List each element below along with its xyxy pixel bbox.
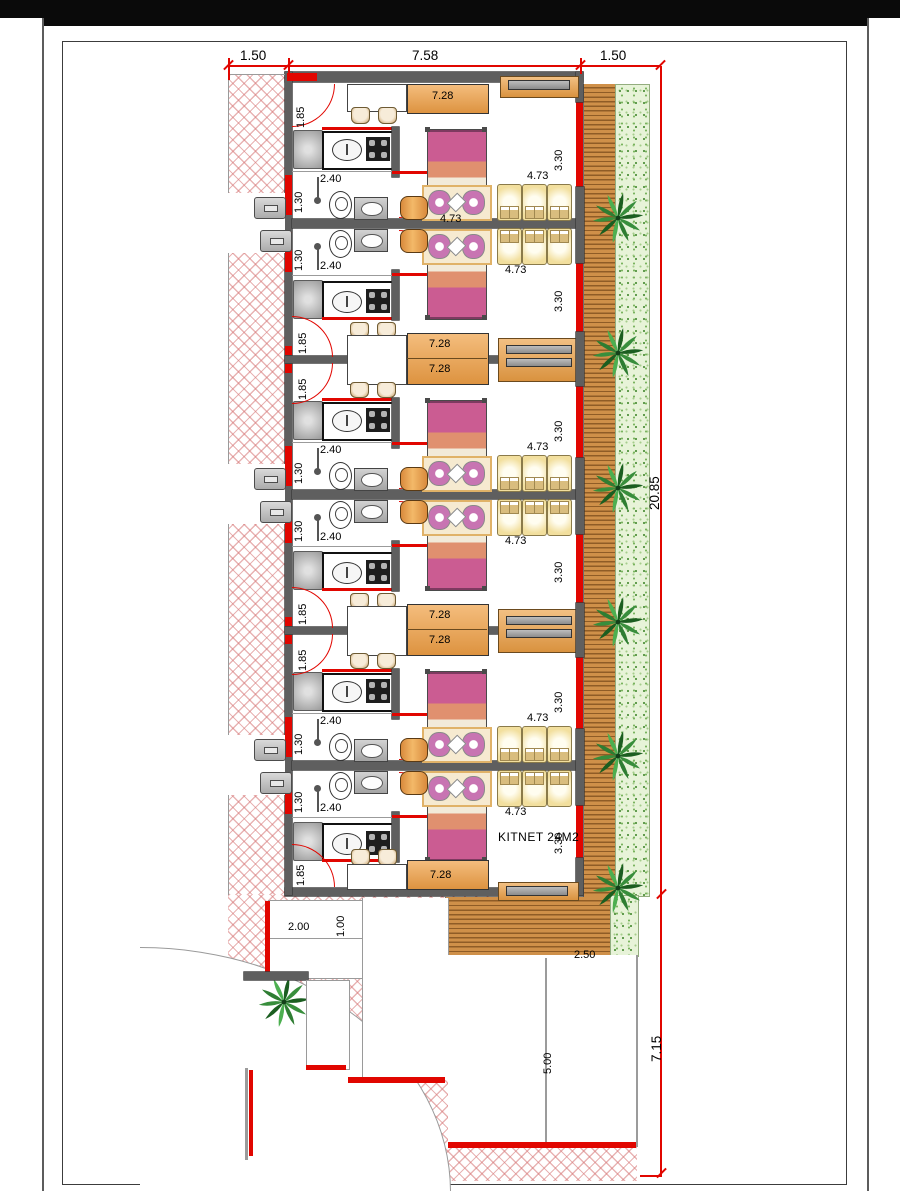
bed-post (482, 398, 487, 403)
dim-label-kitchen: 2.40 (320, 445, 341, 456)
toilet-icon (329, 772, 352, 800)
right-wall-stub (576, 458, 584, 534)
dining-module (497, 455, 522, 492)
right-wall-stub (576, 187, 584, 263)
shower-rod (317, 719, 319, 741)
stove-icon (366, 560, 390, 584)
kitchen-red-line (322, 127, 392, 130)
dim-label-shower: 1.30 (294, 177, 305, 213)
dim-label-living: 4.73 (527, 171, 548, 182)
chair-icon (509, 206, 519, 219)
dim-label-right-total: 20.85 (648, 450, 662, 510)
ac-unit (254, 739, 286, 761)
sink-icon (332, 681, 362, 703)
strip-line (292, 442, 399, 443)
bath-partition-wall (392, 398, 399, 448)
dim-label-living-extra: 4.73 (440, 214, 461, 225)
ac-unit (254, 197, 286, 219)
ac-unit (254, 468, 286, 490)
vanity-sink (354, 468, 388, 491)
dim-label-window: 3.30 (554, 547, 565, 583)
window-glass (506, 345, 572, 354)
toilet-icon (329, 230, 352, 258)
bed (427, 671, 487, 729)
dim-line-right (660, 66, 662, 1176)
hall-cylinder-cabinet (400, 196, 428, 220)
walkway-edge-line (245, 1068, 248, 1160)
toilet-icon (329, 501, 352, 529)
stove-icon (366, 679, 390, 703)
bed-post (482, 127, 487, 132)
vanity-sink (354, 500, 388, 523)
dining-module (522, 228, 547, 265)
shower-head (314, 468, 321, 475)
strip-line (292, 817, 399, 818)
dim-line-top (228, 65, 661, 67)
right-wall-stub (576, 729, 584, 805)
dim-label-car-bay: 2.50 (574, 950, 595, 961)
dim-label-kitchen: 2.40 (320, 261, 341, 272)
bed-post (425, 669, 430, 674)
dim-label-cabinet: 7.28 (430, 870, 451, 881)
dim-label-shower: 1.30 (294, 448, 305, 484)
bed-post (425, 398, 430, 403)
shower-rod (317, 790, 319, 812)
dining-module (547, 184, 572, 221)
hall-cylinder-cabinet (400, 467, 428, 491)
chair-icon (509, 230, 519, 243)
palm-tree-icon (590, 594, 646, 650)
dim-label-moto-bay: 2.00 (288, 922, 309, 933)
door-jamb-red (285, 635, 292, 644)
stove-icon (366, 408, 390, 432)
dim-label-kitchen: 2.40 (320, 803, 341, 814)
dining-module (547, 455, 572, 492)
window-glass (506, 358, 572, 367)
dim-label-top-center: 7.58 (412, 49, 438, 63)
walkway-red-edge (249, 1070, 253, 1156)
shower-head (314, 739, 321, 746)
dim-label-window: 3.30 (554, 276, 565, 312)
kitchen-counter (322, 131, 396, 170)
ac-unit (260, 230, 292, 252)
dining-module (497, 770, 522, 807)
sofa-set (422, 229, 492, 265)
dining-module (547, 770, 572, 807)
sink-icon (332, 291, 362, 313)
bicycle-lane (306, 980, 350, 1070)
palm-tree-icon (590, 325, 646, 381)
dim-label-entry: 1.85 (296, 848, 307, 886)
vanity-sink (354, 739, 388, 762)
dim-label-shower: 1.30 (294, 719, 305, 755)
dim-label-entry: 1.85 (298, 318, 309, 354)
strip-line (292, 275, 399, 276)
chair-icon (509, 501, 519, 514)
vanity-sink (354, 229, 388, 252)
fridge (293, 672, 323, 711)
toilet-icon (329, 733, 352, 761)
bath-partition-wall (392, 541, 399, 591)
hall-cylinder-cabinet (400, 771, 428, 795)
door-jamb-red (285, 364, 292, 373)
shower-head (314, 197, 321, 204)
fridge (293, 551, 323, 590)
chair-icon (534, 230, 544, 243)
dim-label-top-left: 1.50 (240, 49, 266, 63)
bed (427, 533, 487, 591)
dim-label-living: 4.73 (505, 536, 526, 547)
dining-module (522, 770, 547, 807)
sofa-set (422, 727, 492, 763)
dining-set (497, 499, 571, 534)
stove-icon (366, 137, 390, 161)
dim-label-shower: 1.30 (294, 235, 305, 271)
unit-pair: 2.40 2.40 1.30 1.30 (292, 127, 576, 320)
sofa-set (422, 456, 492, 492)
chair-icon (559, 206, 569, 219)
chair-icon (509, 772, 519, 785)
kitchen-counter (322, 281, 396, 320)
dim-label-moto-lane: 1.00 (336, 903, 347, 937)
dining-module (547, 726, 572, 763)
right-wall-stub (576, 332, 584, 386)
kitchen-red-line (322, 669, 392, 672)
chair-icon (534, 748, 544, 761)
window-glass (506, 629, 572, 638)
dim-label-window: 3.30 (554, 135, 565, 171)
palm-tree-icon (590, 860, 646, 916)
hall-cylinder-cabinet (400, 500, 428, 524)
unit-pair: 2.40 2.40 1.30 1.30 (292, 398, 576, 591)
bed (427, 400, 487, 458)
cabinet-split-line (407, 358, 487, 359)
chair-icon (534, 206, 544, 219)
vanity-sink (354, 771, 388, 794)
dim-label-living: 4.73 (505, 807, 526, 818)
dim-label-top-right: 1.50 (600, 49, 626, 63)
kitchen-counter (322, 402, 396, 441)
chair-icon (377, 382, 396, 398)
car-bays-red-edge (448, 1142, 636, 1148)
vanity-sink (354, 197, 388, 220)
chair-icon (377, 653, 396, 669)
fridge (293, 401, 323, 440)
kitchen-red-line (322, 398, 392, 401)
strip-line (292, 546, 399, 547)
dining-set (497, 726, 571, 761)
dining-module (497, 726, 522, 763)
chair-icon (534, 477, 544, 490)
chair-icon (350, 653, 369, 669)
bed-post (482, 669, 487, 674)
car-bay-1-red-edge (348, 1077, 445, 1083)
left-wall-window (285, 446, 292, 486)
toilet-icon (329, 191, 352, 219)
shower-head (314, 243, 321, 250)
dim-label-cabinet: 7.28 (429, 610, 450, 621)
dining-module (522, 726, 547, 763)
fridge (293, 280, 323, 319)
fridge (293, 130, 323, 169)
dim-label-parking-depth: 7.15 (650, 1012, 664, 1062)
chair-icon (509, 748, 519, 761)
hall-cylinder-cabinet (400, 229, 428, 253)
window-glass (506, 616, 572, 625)
pair-divider-row: 1.85 1.85 7.28 7.28 (292, 591, 576, 669)
moto-bay-1 (268, 900, 364, 940)
chair-icon (559, 748, 569, 761)
chair-icon (509, 477, 519, 490)
shower-rod (317, 519, 319, 541)
dim-label-kitchen: 2.40 (320, 174, 341, 185)
dining-module (522, 184, 547, 221)
bath-partition-wall (392, 669, 399, 719)
window-glass (506, 886, 568, 896)
site-plan: 1.85 7.28 2.4 (0, 0, 900, 1191)
dining-set (497, 228, 571, 263)
cabinet-split-line (407, 629, 487, 630)
shower-rod (317, 448, 319, 470)
bath-partition-wall (392, 127, 399, 177)
entry-table (347, 335, 407, 385)
dining-module (497, 228, 522, 265)
dim-label-shower: 1.30 (294, 506, 305, 542)
shower-head (314, 514, 321, 521)
sink-icon (332, 562, 362, 584)
chair-icon (559, 477, 569, 490)
palm-tree-icon (590, 460, 646, 516)
left-wall-window (285, 175, 292, 215)
sink-icon (332, 410, 362, 432)
dim-label-living: 4.73 (505, 265, 526, 276)
chair-icon (559, 501, 569, 514)
palm-tree-icon (590, 190, 646, 246)
dining-set (497, 770, 571, 805)
door-jamb-red (285, 346, 292, 355)
dining-module (522, 455, 547, 492)
ac-unit (260, 772, 292, 794)
shower-head (314, 785, 321, 792)
dim-arrow-foot (640, 1175, 662, 1177)
dim-label-car-depth: 5.00 (543, 1030, 554, 1074)
entry-table (347, 606, 407, 656)
walkway-wall (244, 972, 308, 980)
dim-label-cabinet: 7.28 (429, 635, 450, 646)
left-wall-window (285, 717, 292, 757)
chair-icon (350, 382, 369, 398)
dim-label-cabinet: 7.28 (429, 339, 450, 350)
dining-set (497, 455, 571, 490)
hall-cylinder-cabinet (400, 738, 428, 762)
right-wall-stub (576, 603, 584, 657)
bed (427, 804, 487, 862)
bed (427, 129, 487, 187)
toilet-icon (329, 462, 352, 490)
dim-label-shower: 1.30 (294, 777, 305, 813)
dim-label-kitchen: 2.40 (320, 532, 341, 543)
bed (427, 262, 487, 320)
dim-label-entry: 1.85 (298, 635, 309, 671)
dining-module (547, 228, 572, 265)
ac-unit (260, 501, 292, 523)
shower-rod (317, 177, 319, 199)
kitnet-area-label: KITNET 24M2 (498, 831, 579, 843)
sink-icon (332, 139, 362, 161)
moto-bay-red-edge (265, 901, 270, 976)
dim-label-cabinet: 7.28 (429, 364, 450, 375)
bath-partition-wall (392, 270, 399, 320)
bicycle-lane-red-edge (306, 1065, 346, 1070)
pair-divider-row: 1.85 1.85 7.28 7.28 (292, 320, 576, 398)
chair-icon (559, 772, 569, 785)
scanned-floor-plan-page: 1.85 7.28 2.4 (0, 0, 900, 1191)
chair-icon (559, 230, 569, 243)
strip-line (292, 713, 399, 714)
kitchen-counter (322, 673, 396, 712)
door-jamb-red (285, 617, 292, 626)
chair-icon (534, 501, 544, 514)
dim-label-living: 4.73 (527, 713, 548, 724)
chair-icon (534, 772, 544, 785)
palm-tree-icon (590, 728, 646, 784)
dim-label-living: 4.73 (527, 442, 548, 453)
palm-tree-icon (256, 974, 312, 1030)
dim-label-entry: 1.85 (298, 589, 309, 625)
dining-set (497, 184, 571, 219)
sofa-set (422, 771, 492, 807)
bed-post (425, 127, 430, 132)
dim-label-window: 3.30 (554, 677, 565, 713)
strip-line (292, 171, 399, 172)
car-bay-right-line (636, 955, 638, 1147)
dining-module (497, 184, 522, 221)
dim-label-kitchen: 2.40 (320, 716, 341, 727)
dim-label-window: 3.30 (554, 406, 565, 442)
dim-label-entry: 1.85 (298, 364, 309, 400)
stove-icon (366, 289, 390, 313)
entry-table (347, 864, 407, 890)
kitchen-counter (322, 552, 396, 591)
sofa-set (422, 500, 492, 536)
dining-module (522, 499, 547, 536)
car-bay-1 (362, 898, 449, 1080)
dining-module (547, 499, 572, 536)
shower-rod (317, 248, 319, 270)
dining-module (497, 499, 522, 536)
